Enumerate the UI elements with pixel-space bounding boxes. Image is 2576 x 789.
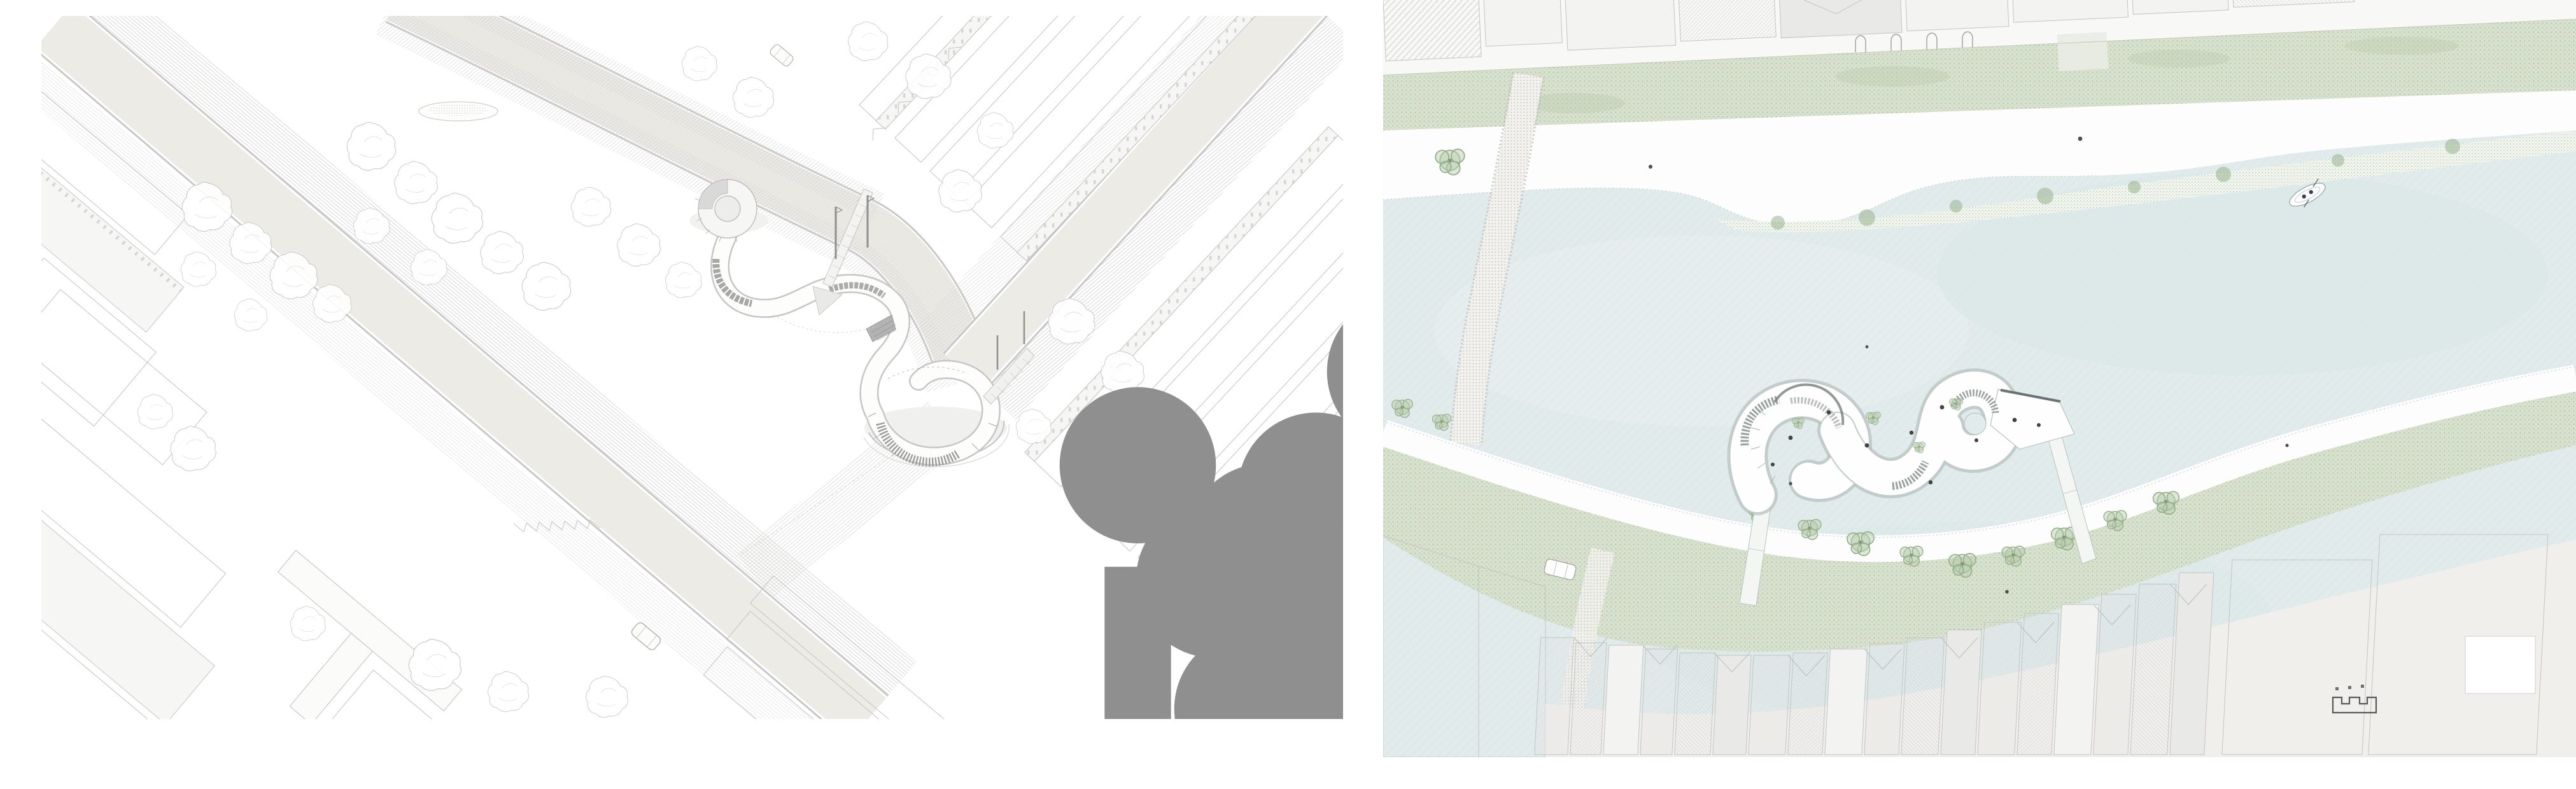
site-plan-svg xyxy=(1383,0,2576,757)
two-panel-architectural-board xyxy=(0,0,2576,789)
axonometric-panel xyxy=(41,16,1343,719)
axonometric-svg xyxy=(41,16,1343,719)
site-plan-panel xyxy=(1383,0,2576,757)
axo-planter xyxy=(419,102,498,121)
